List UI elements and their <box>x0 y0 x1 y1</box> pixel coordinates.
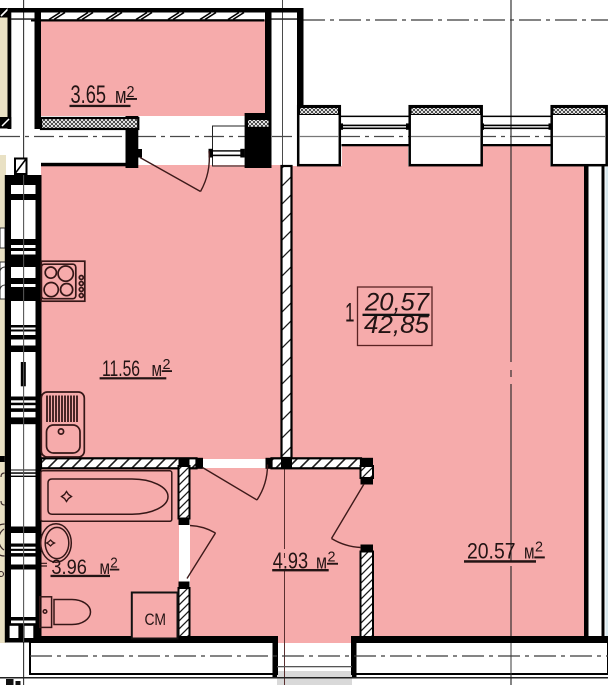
svg-text:м: м <box>115 83 127 108</box>
svg-text:2: 2 <box>535 539 543 556</box>
svg-text:3.65: 3.65 <box>71 81 107 109</box>
svg-text:2: 2 <box>328 548 336 565</box>
svg-text:11.56: 11.56 <box>102 356 140 381</box>
svg-text:м: м <box>524 541 535 563</box>
svg-text:СМ: СМ <box>145 610 167 629</box>
svg-text:20.57: 20.57 <box>467 538 516 563</box>
svg-text:1: 1 <box>345 298 355 328</box>
